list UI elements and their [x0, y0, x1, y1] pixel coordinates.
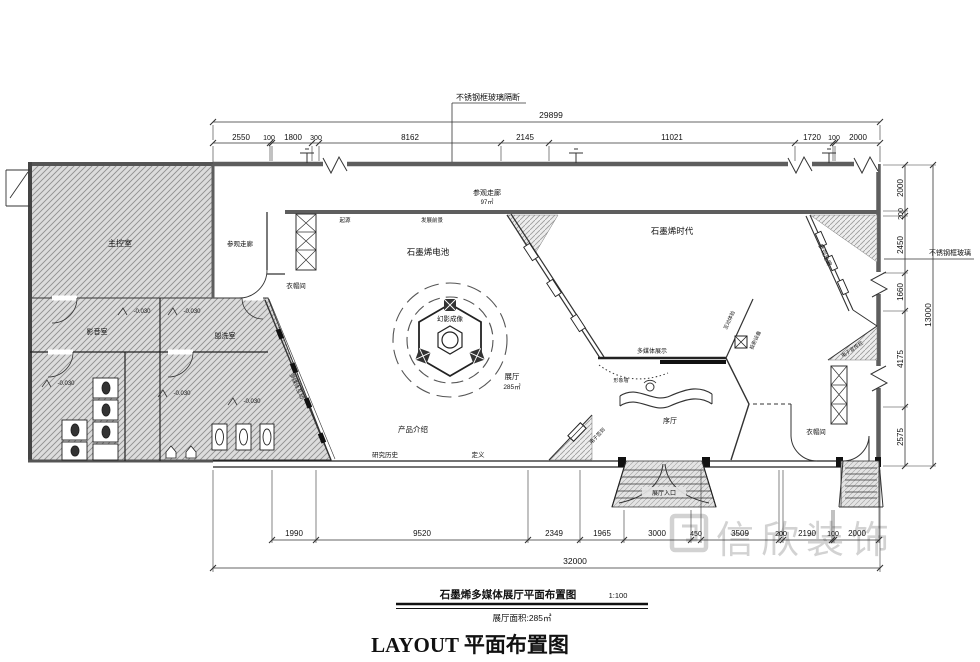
label-hall: 展厅: [505, 372, 520, 381]
dim: 300: [310, 135, 322, 142]
dim: 200: [775, 531, 787, 538]
hall-walls: [213, 149, 887, 467]
label-corridor-left: 参观走廊: [227, 239, 254, 248]
label-product-intro: 产品介绍: [398, 424, 428, 434]
break-symbols: [323, 156, 887, 391]
top-dimension-labels: 29899 2550 100 1800 300 8162 2145 11021 …: [232, 92, 867, 142]
label-definition: 定义: [472, 450, 486, 459]
urinals: [212, 424, 274, 450]
label-av-room: 影音室: [87, 327, 108, 336]
dim: 2145: [516, 133, 534, 142]
dim: 100: [828, 135, 840, 142]
dim: 200: [898, 208, 905, 220]
hologram-feature: [393, 283, 507, 397]
label-cloakroom-right: 衣帽间: [806, 427, 826, 436]
label-corridor-top-area: 97㎡: [481, 198, 494, 206]
label-washroom: 盥洗室: [215, 331, 236, 340]
floor-plan-sheet: 信欣装饰: [0, 0, 980, 662]
right-stair: [839, 461, 883, 507]
dim: 100: [263, 135, 275, 142]
corridor-door-swing: [239, 270, 267, 298]
image-wall-curve: [599, 365, 668, 379]
dim: 1660: [896, 283, 905, 301]
dim: 2349: [545, 529, 563, 538]
label-hall-area: 285㎡: [503, 382, 521, 391]
label-image-wall: 形象墙: [613, 377, 628, 384]
projection-device-icon: [735, 336, 747, 348]
axis-markers: [300, 149, 836, 163]
elevation-value: -0.030: [243, 399, 261, 405]
dim: 2550: [232, 133, 250, 142]
dim: 2000: [849, 133, 867, 142]
watermark-text: 信欣装饰: [716, 520, 896, 562]
label-hologram: 幻影成像: [437, 314, 464, 323]
dim: 1965: [593, 529, 611, 538]
dim: 3000: [648, 529, 666, 538]
dim: 8162: [401, 133, 419, 142]
dim-top-total: 29899: [539, 110, 563, 120]
dim: 1720: [803, 133, 821, 142]
dim: 3509: [731, 529, 749, 538]
label-prelude-hall: 序厅: [663, 416, 677, 425]
stool-icon: [646, 383, 654, 391]
entrance-steps: [612, 461, 716, 507]
title-block: 石墨烯多媒体展厅平面布置图 1:100 展厅面积:285㎡ LAYOUT 平面布…: [371, 588, 648, 657]
dim: 2450: [896, 236, 905, 254]
floor-plan-drawing: 信欣装饰: [0, 0, 980, 662]
dim: 2000: [896, 179, 905, 197]
label-research-history: 研究历史: [372, 450, 399, 459]
label-cloakroom-left: 衣帽间: [286, 281, 306, 290]
right-wall-cases: [815, 231, 848, 294]
dim-right-total: 13000: [923, 303, 933, 327]
label-prospects: 发展前景: [421, 216, 444, 224]
dim: 1800: [284, 133, 302, 142]
right-partition-label: 不锈钢框玻璃: [929, 248, 971, 257]
dim-bottom-total: 32000: [563, 556, 587, 566]
drawing-scale: 1:100: [609, 591, 628, 600]
elevation-value: -0.030: [183, 309, 201, 315]
right-dimension-labels: 2000 200 2450 1660 4175 2575 13000 不锈钢框玻…: [896, 179, 971, 446]
label-era-zone: 石墨烯时代: [651, 226, 694, 236]
label-battery-zone: 石墨烯电池: [407, 247, 450, 257]
cloakroom-right-shelf: [831, 366, 847, 424]
dim: 1990: [285, 529, 303, 538]
label-interactive-exp: 互动体验: [722, 310, 737, 331]
label-main-control: 主控室: [108, 238, 132, 248]
label-origin: 起源: [339, 216, 351, 224]
label-corridor-top: 参观走廊: [473, 188, 501, 197]
elevation-value: -0.030: [133, 309, 151, 315]
top-partition-label: 不锈钢框玻璃隔断: [456, 92, 520, 102]
main-title: LAYOUT 平面布置图: [371, 633, 569, 657]
dim: 4175: [896, 350, 905, 368]
dim: 11021: [661, 133, 683, 142]
label-corridor-right: 参观走廊: [816, 242, 833, 267]
label-projection-device: 投影设备: [748, 330, 763, 351]
reception-desk: [620, 380, 712, 408]
cloakroom-right-doors: [791, 404, 869, 461]
area-note: 展厅面积:285㎡: [492, 613, 552, 623]
dim: 2190: [798, 529, 816, 538]
cloakroom-left-shelf: [296, 214, 316, 270]
dim: 2575: [896, 428, 905, 446]
annex-entry-door: [6, 170, 30, 206]
main-control-room: [30, 165, 213, 298]
prelude-hall-wall: [726, 358, 749, 460]
dim: 450: [690, 531, 702, 538]
elevation-value: -0.030: [173, 391, 191, 397]
bottom-wall: [213, 461, 877, 467]
dim: 100: [827, 531, 839, 538]
drawing-title: 石墨烯多媒体展厅平面布置图: [439, 588, 577, 601]
label-multimedia-display: 多媒体展示: [637, 347, 667, 355]
dim: 9520: [413, 529, 431, 538]
dim: 2000: [848, 529, 866, 538]
annex-building: [6, 162, 331, 461]
wall-a-cases: [524, 243, 586, 331]
partition-leader: [452, 103, 526, 162]
label-entrance: 展厅入口: [652, 490, 676, 497]
elevation-value: -0.030: [57, 381, 75, 387]
